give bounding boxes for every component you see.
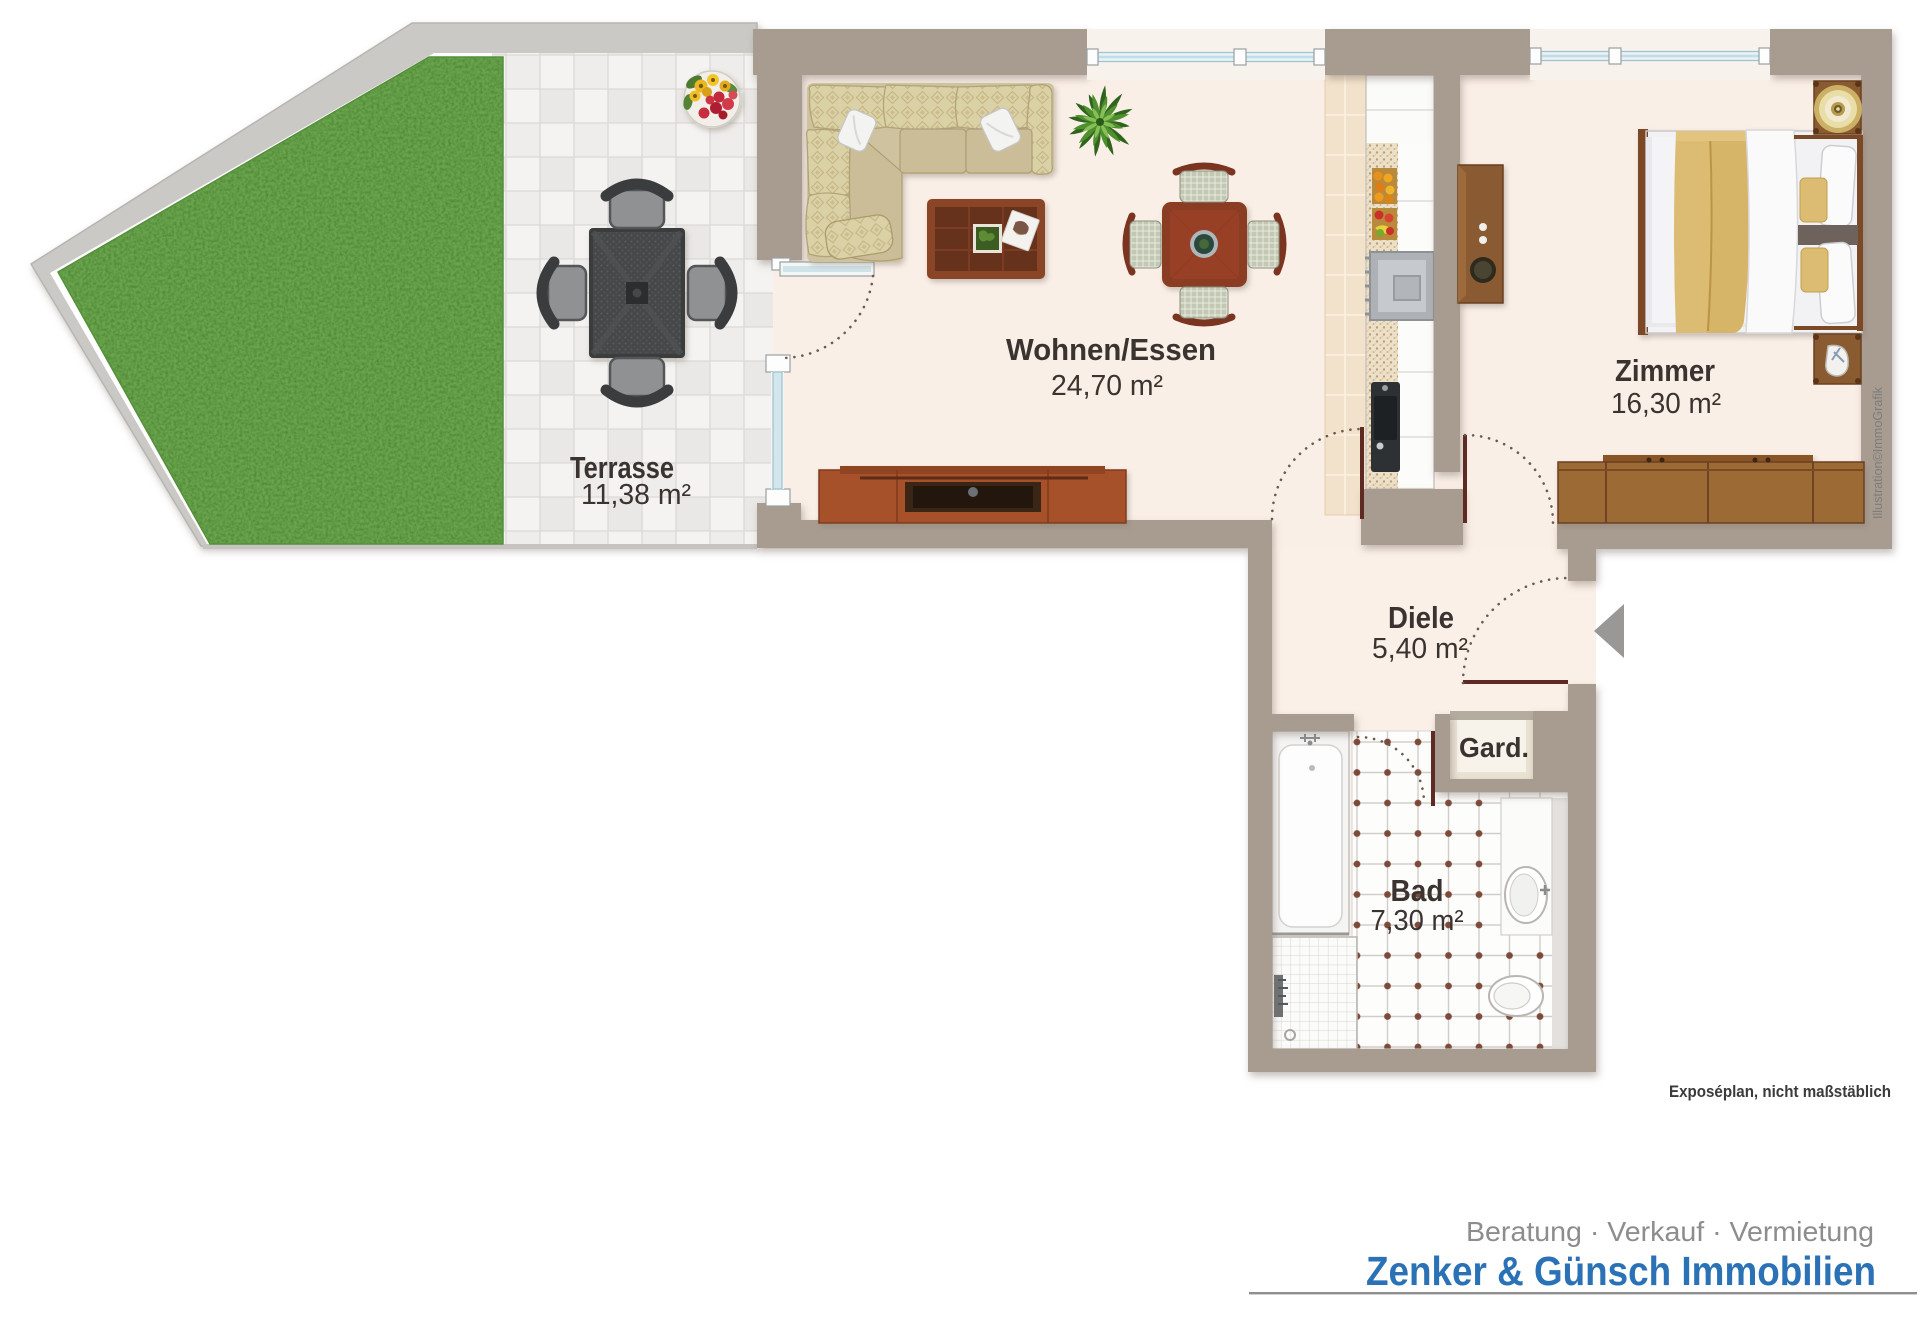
svg-text:Gard.: Gard. [1459, 732, 1529, 763]
svg-text:7,30 m²: 7,30 m² [1371, 905, 1464, 937]
svg-text:Exposéplan, nicht maßstäblich: Exposéplan, nicht maßstäblich [1669, 1083, 1891, 1101]
svg-text:Bad: Bad [1391, 873, 1444, 908]
svg-text:Beratung · Verkauf · Vermietun: Beratung · Verkauf · Vermietung [1466, 1216, 1874, 1247]
svg-text:Zenker & Günsch Immobilien: Zenker & Günsch Immobilien [1366, 1248, 1876, 1294]
svg-text:24,70 m²: 24,70 m² [1051, 370, 1163, 402]
svg-text:16,30 m²: 16,30 m² [1611, 388, 1721, 420]
svg-text:Zimmer: Zimmer [1615, 353, 1715, 388]
svg-text:11,38 m²: 11,38 m² [581, 479, 691, 511]
svg-text:Diele: Diele [1388, 600, 1454, 635]
svg-text:Illustration©ImmoGrafik: Illustration©ImmoGrafik [1871, 386, 1885, 519]
svg-text:Wohnen/Essen: Wohnen/Essen [1006, 332, 1216, 367]
svg-text:5,40 m²: 5,40 m² [1372, 633, 1468, 665]
